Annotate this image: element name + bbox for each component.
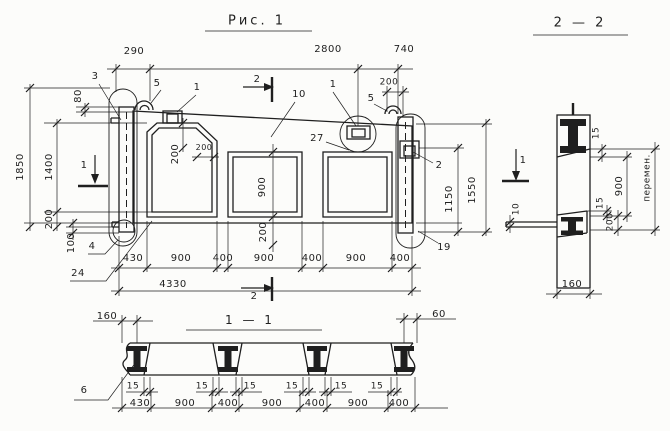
s22-dim-900: 900 [615,176,625,197]
dim-80: 80 [74,89,84,103]
callout-27: 27 [310,134,324,144]
marker-1-right: 1 [520,156,527,166]
callout-6: 6 [81,386,88,396]
dim-1150: 1150 [445,185,455,212]
technical-drawing-sheet: Рис. 1 2 — 2 1 — 1 290 2800 740 200 80 1… [0,0,670,431]
s11-dim-15b: 15 [196,383,208,392]
s11-dim-160: 160 [97,312,118,322]
callout-2: 2 [436,161,443,171]
dim-200-chamfer-v: 200 [171,144,181,165]
dim-100: 100 [67,233,77,254]
callout-3: 3 [92,72,99,82]
marker-2-top: 2 [254,75,261,85]
dim-200-below-opening: 200 [259,222,269,243]
dim-740: 740 [394,45,415,55]
s11-chain-430: 430 [130,399,151,409]
s22-dim-15-top: 15 [593,127,602,139]
chain-400b: 400 [302,254,323,264]
section-cut-markers [78,77,529,301]
dim-1400: 1400 [45,153,55,180]
elevation-right-post [396,114,425,248]
callout-19: 19 [437,243,451,253]
chain-900a: 900 [171,254,192,264]
callout-10: 10 [292,90,306,100]
callout-5-right: 5 [368,94,375,104]
chain-900c: 900 [346,254,367,264]
s22-dim-15-bottom: 15 [597,197,606,209]
s22-dim-10: 10 [513,203,522,215]
s11-chain-900a: 900 [175,399,196,409]
dim-200-left: 200 [45,209,55,230]
s11-dim-15d: 15 [286,383,298,392]
s22-dim-variable: перемен. [644,154,653,202]
chain-900b: 900 [254,254,275,264]
marker-2-bottom: 2 [251,292,258,302]
dim-200-chamfer-h: 200 [196,144,213,152]
s11-dim-15c: 15 [244,383,256,392]
dim-200-top: 200 [380,79,399,88]
callout-24: 24 [71,269,85,279]
s11-dim-15e: 15 [335,383,347,392]
dim-290: 290 [124,47,145,57]
s11-chain-900c: 900 [348,399,369,409]
dim-900-opening: 900 [258,177,268,198]
section-2-2-view [506,35,660,299]
marker-1-left: 1 [81,161,88,171]
dim-2800: 2800 [314,45,341,55]
elevation-leaders [70,84,438,281]
dim-1550: 1550 [468,176,478,203]
section-1-1-title: 1 — 1 [225,314,275,326]
s22-dim-200: 200 [607,213,616,232]
s11-chain-900b: 900 [262,399,283,409]
callout-4: 4 [89,242,96,252]
s11-dim-15a: 15 [127,383,139,392]
s22-dim-160: 160 [562,280,583,290]
callout-1-left: 1 [194,83,201,93]
section-2-2-title: 2 — 2 [554,17,607,30]
figure-title: Рис. 1 [228,15,286,28]
callout-1-right: 1 [330,80,337,90]
dim-4330: 4330 [159,280,186,290]
dim-1850: 1850 [16,153,26,180]
callout-5-left: 5 [154,79,161,89]
drawing-linework [0,0,670,431]
chain-430: 430 [123,254,144,264]
s11-chain-400b: 400 [305,399,326,409]
chain-400c: 400 [390,254,411,264]
s11-dim-15f: 15 [371,383,383,392]
chain-400a: 400 [213,254,234,264]
s11-chain-400a: 400 [218,399,239,409]
s11-chain-400c: 400 [389,399,410,409]
s11-dim-60: 60 [432,310,446,320]
